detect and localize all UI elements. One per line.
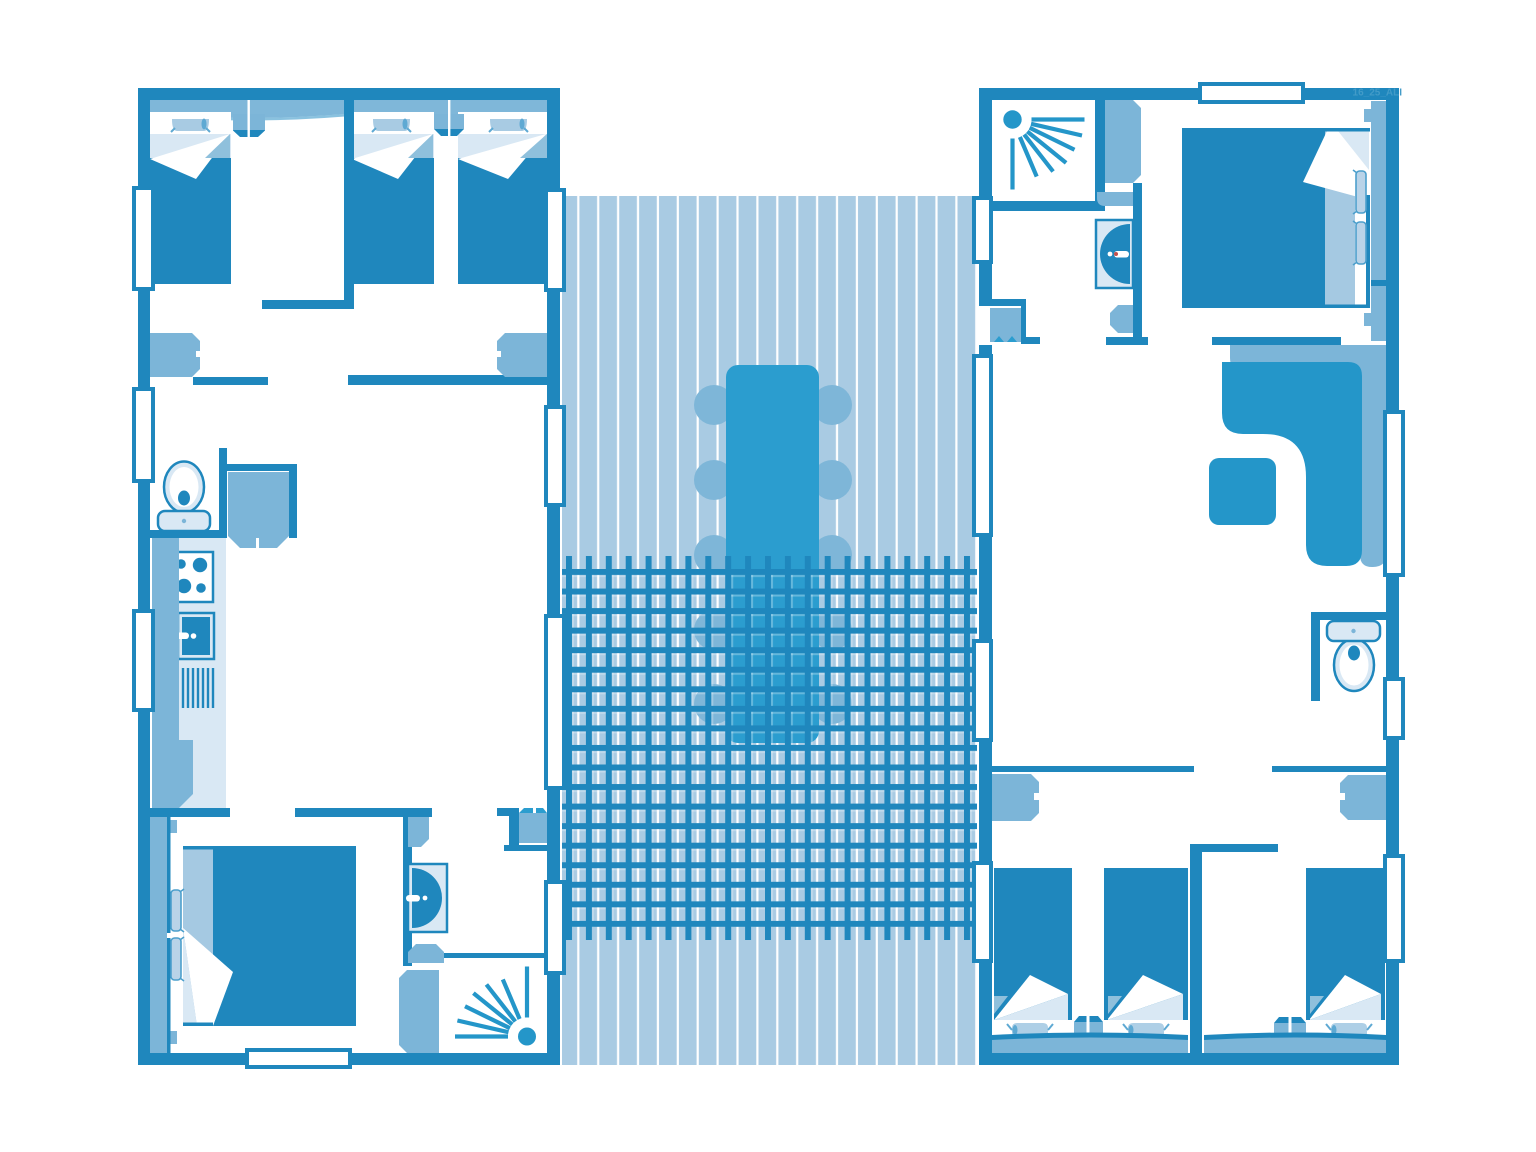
svg-text:16_25_ALI: 16_25_ALI bbox=[1353, 88, 1403, 99]
